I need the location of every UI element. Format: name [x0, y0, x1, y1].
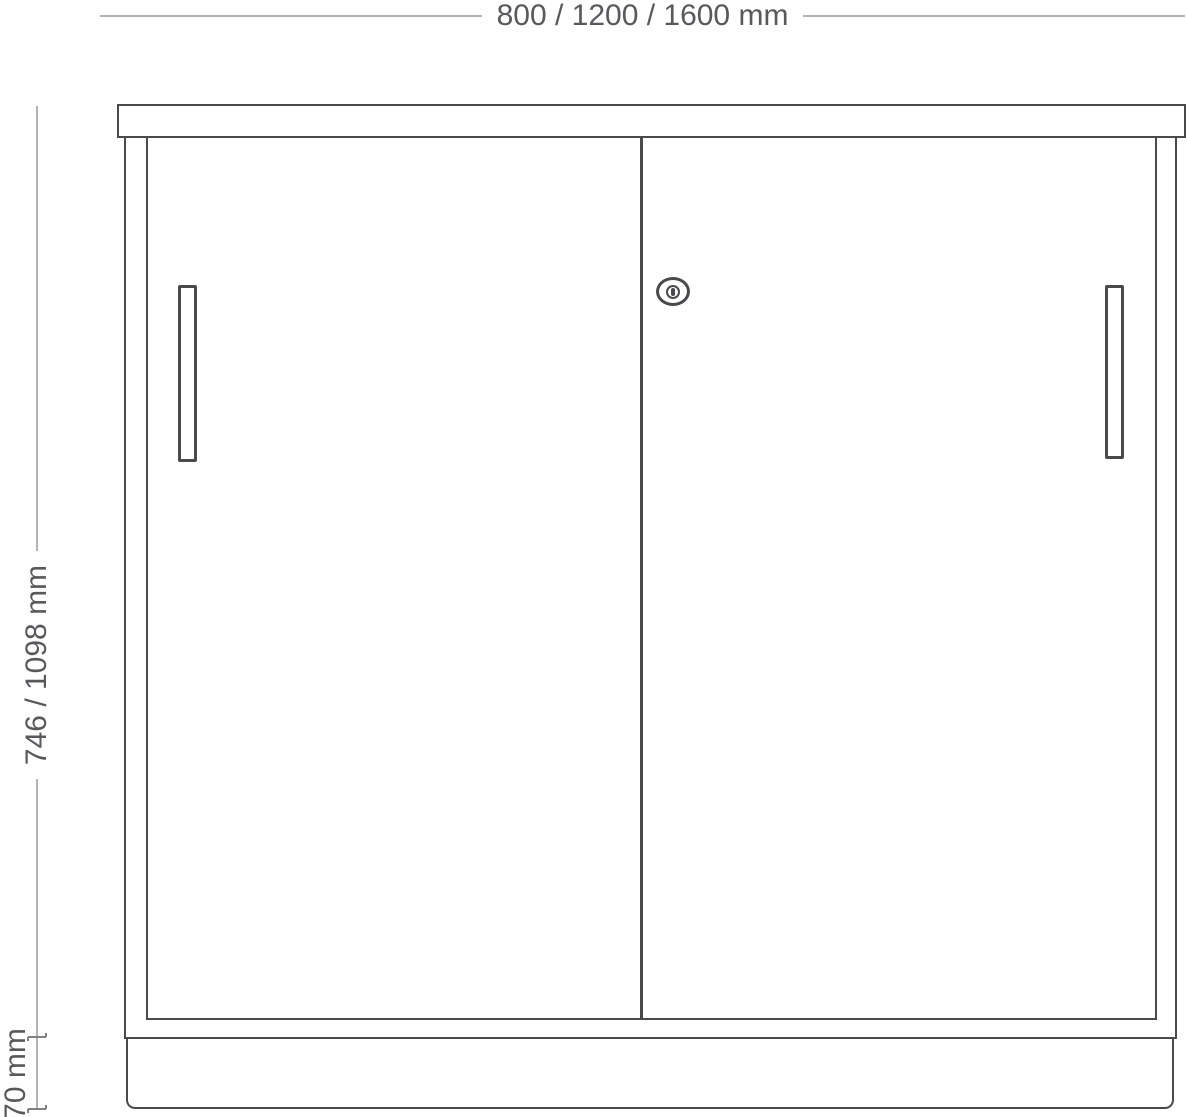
right-door-handle [1105, 285, 1124, 459]
left-sliding-door [148, 138, 640, 1018]
door-divider [640, 138, 643, 1018]
left-door-handle [178, 285, 197, 462]
lock-keyhole [671, 288, 675, 296]
plinth-dimension-line [36, 1037, 38, 1110]
height-dimension-label: 746 / 1098 mm [22, 551, 52, 779]
dimension-line-left-segment [100, 15, 482, 17]
cabinet-plinth [126, 1039, 1174, 1109]
lock-icon [656, 277, 690, 306]
dimension-line-right-segment [803, 15, 1185, 17]
lock-cylinder [666, 285, 680, 299]
cabinet-elevation-drawing: 800 / 1200 / 1600 mm 746 / 1098 mm 70 mm [0, 0, 1187, 1117]
cabinet-top-panel [117, 104, 1186, 138]
width-dimension: 800 / 1200 / 1600 mm [100, 0, 1185, 31]
width-dimension-label: 800 / 1200 / 1600 mm [482, 1, 804, 31]
right-sliding-door [643, 138, 1155, 1018]
plinth-dimension-label: 70 mm [1, 1028, 31, 1117]
